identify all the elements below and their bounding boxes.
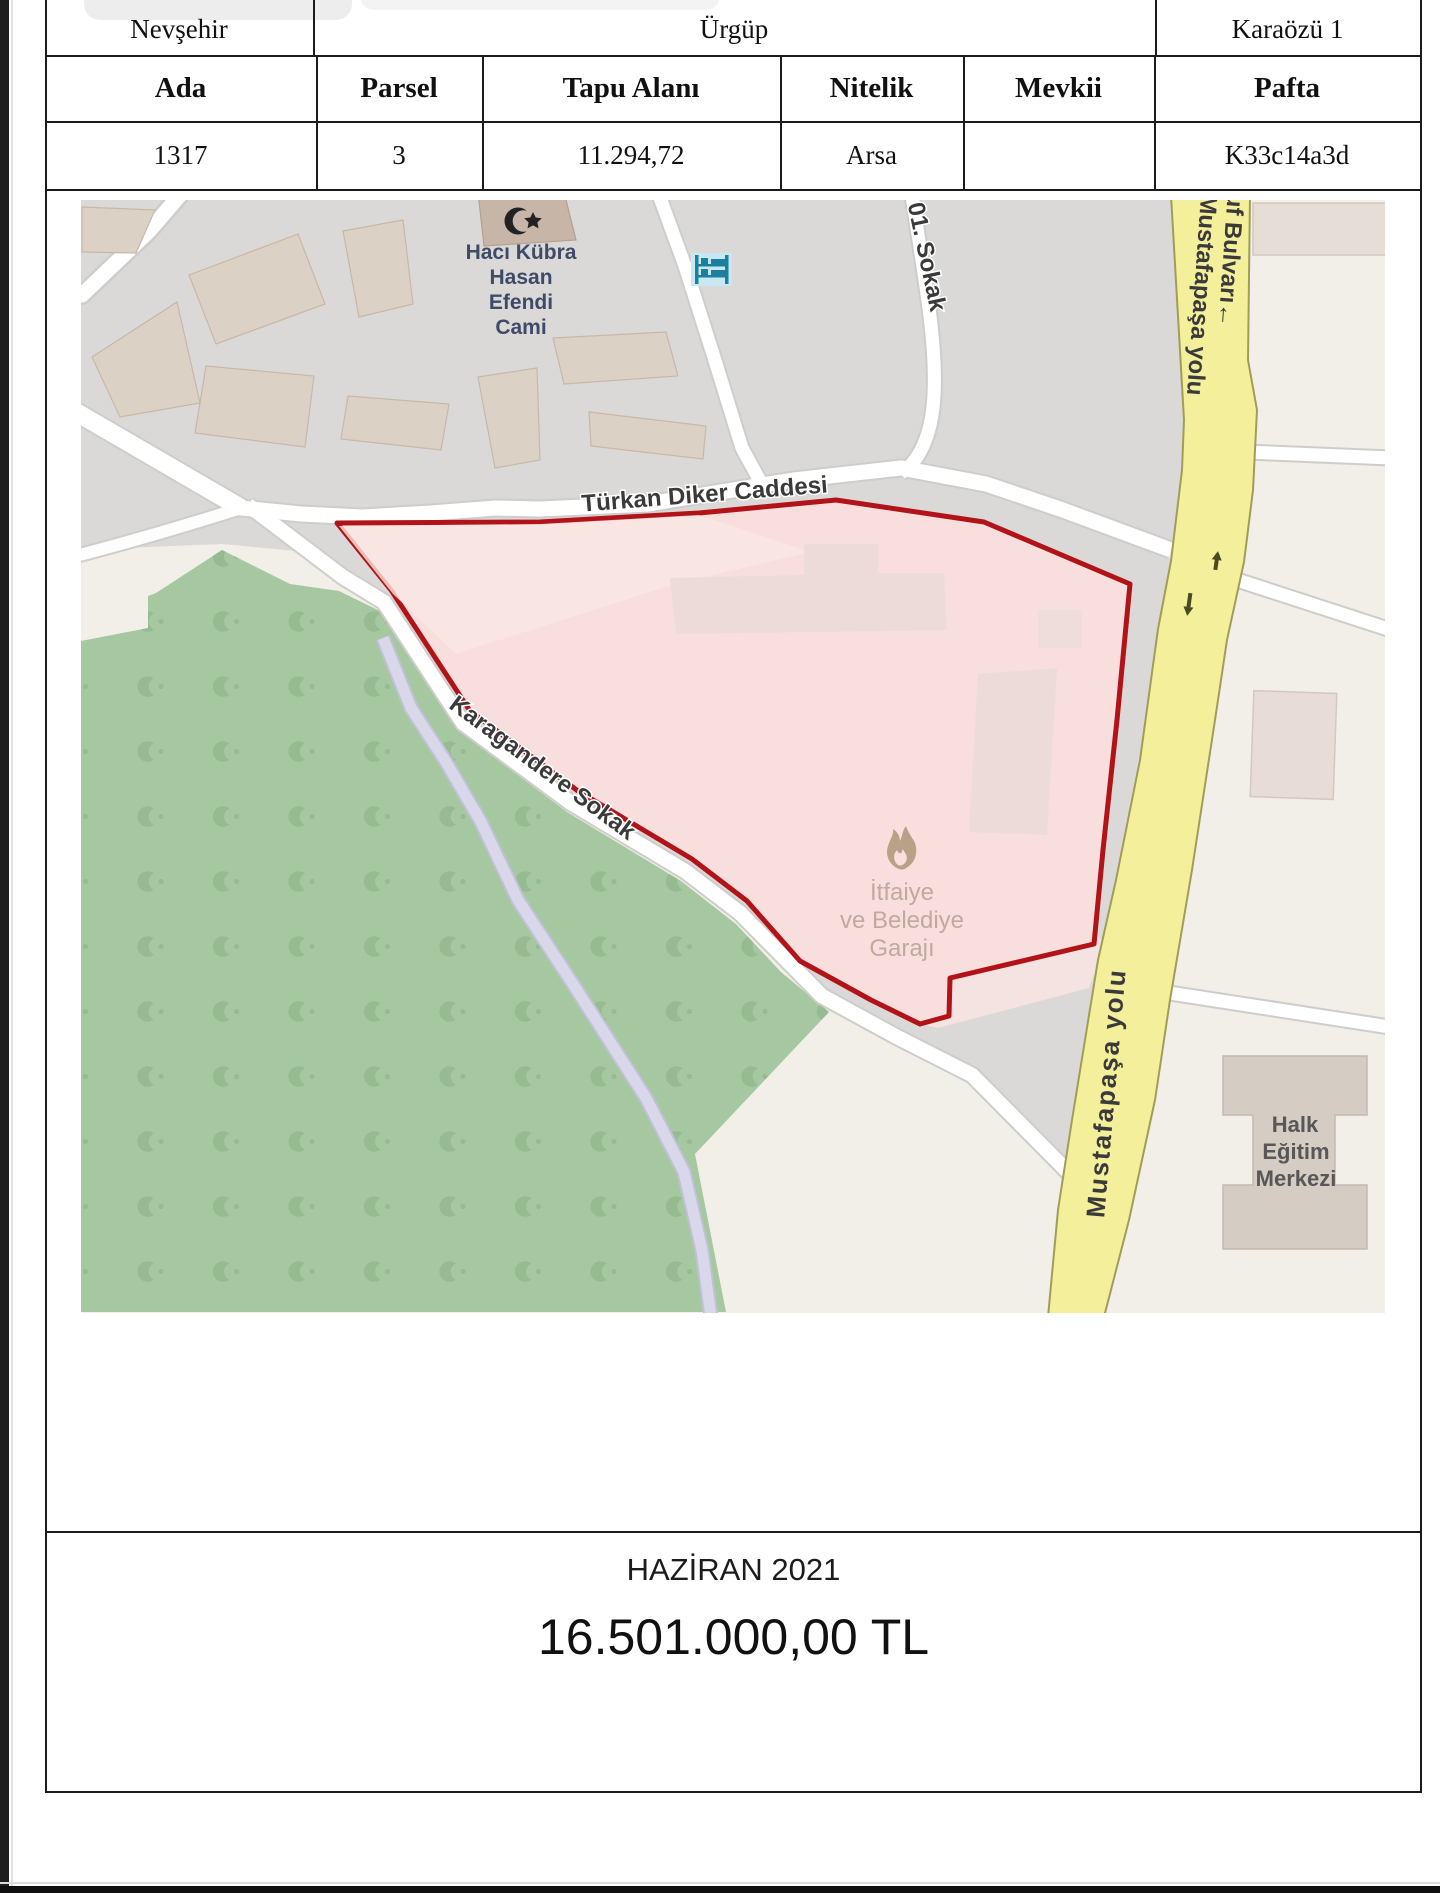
svg-text:ve Belediye: ve Belediye: [840, 907, 964, 934]
svg-text:Garajı: Garajı: [869, 935, 934, 962]
svg-text:Hacı Kübra: Hacı Kübra: [466, 241, 577, 264]
svg-text:Hasan: Hasan: [489, 266, 552, 289]
svg-text:İtfaiye: İtfaiye: [870, 879, 934, 906]
svg-text:Efendi: Efendi: [489, 291, 553, 314]
svg-text:Merkezi: Merkezi: [1256, 1166, 1337, 1191]
svg-text:Eğitim: Eğitim: [1262, 1139, 1329, 1164]
svg-text:Cami: Cami: [495, 316, 546, 339]
svg-text:Halk: Halk: [1272, 1112, 1319, 1137]
